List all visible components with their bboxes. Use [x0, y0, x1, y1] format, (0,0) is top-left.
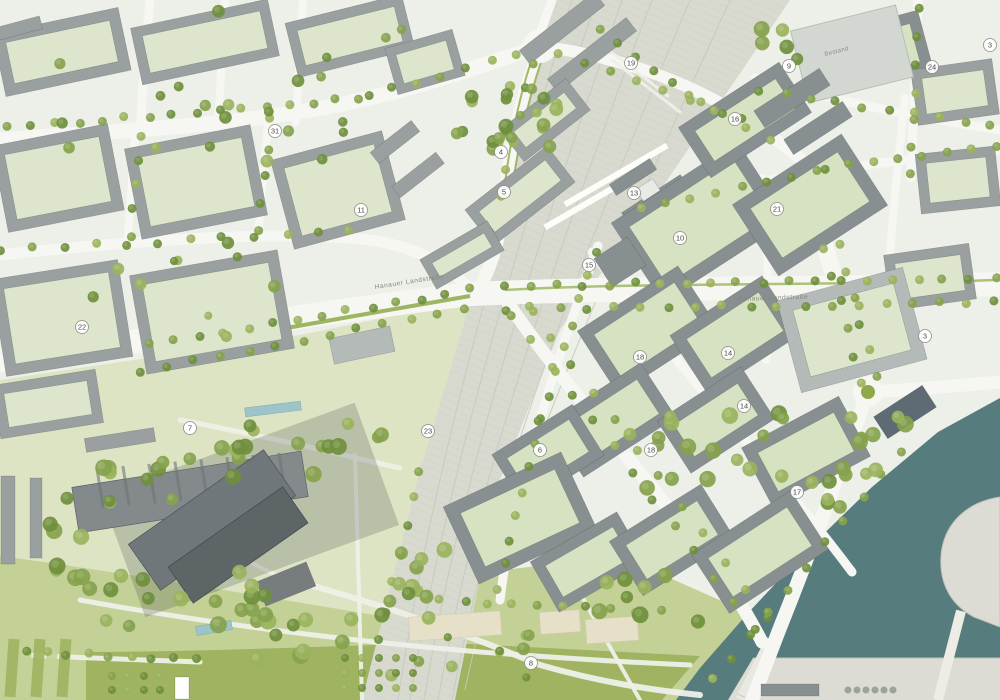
- plan-marker-31: 31: [269, 125, 282, 138]
- svg-text:13: 13: [630, 189, 638, 198]
- svg-text:3: 3: [988, 41, 992, 50]
- svg-text:22: 22: [78, 323, 86, 332]
- svg-text:18: 18: [636, 353, 644, 362]
- svg-text:16: 16: [731, 115, 739, 124]
- svg-text:6: 6: [538, 446, 542, 455]
- plan-marker-19: 19: [625, 57, 638, 70]
- plan-marker-18: 18: [634, 351, 647, 364]
- svg-text:9: 9: [787, 62, 791, 71]
- plan-marker-22: 22: [76, 321, 89, 334]
- svg-text:18: 18: [647, 446, 655, 455]
- plan-marker-9: 9: [783, 60, 796, 73]
- svg-text:15: 15: [585, 261, 593, 270]
- svg-text:21: 21: [773, 205, 781, 214]
- plan-marker-14: 14: [738, 400, 751, 413]
- svg-text:3: 3: [923, 332, 927, 341]
- svg-text:8: 8: [529, 659, 533, 668]
- plan-marker-13: 13: [628, 187, 641, 200]
- plan-marker-11: 11: [355, 204, 368, 217]
- svg-text:31: 31: [271, 127, 279, 136]
- building-label-0: Bestand: [824, 46, 850, 58]
- svg-text:19: 19: [627, 59, 635, 68]
- plan-marker-21: 21: [771, 203, 784, 216]
- plan-marker-6: 6: [534, 444, 547, 457]
- plan-marker-4: 4: [495, 146, 508, 159]
- svg-text:24: 24: [928, 63, 936, 72]
- plan-marker-3: 3: [919, 330, 932, 343]
- svg-text:23: 23: [424, 427, 432, 436]
- plan-marker-24: 24: [926, 61, 939, 74]
- plan-marker-17: 17: [791, 486, 804, 499]
- plan-marker-5: 5: [498, 186, 511, 199]
- plan-marker-3: 3: [984, 39, 997, 52]
- plan-marker-15: 15: [583, 259, 596, 272]
- plan-marker-18: 18: [645, 444, 658, 457]
- plan-marker-7: 7: [184, 422, 197, 435]
- svg-text:14: 14: [724, 349, 732, 358]
- svg-text:17: 17: [793, 488, 801, 497]
- svg-text:7: 7: [188, 424, 192, 433]
- map-annotation-layer: Hanauer LandstraßeHanauer LandstraßeBest…: [0, 0, 1000, 700]
- street-label-0: Hanauer Landstraße: [374, 273, 445, 291]
- masterplan-map: Hanauer LandstraßeHanauer LandstraßeBest…: [0, 0, 1000, 700]
- svg-text:10: 10: [676, 234, 684, 243]
- plan-marker-14: 14: [722, 347, 735, 360]
- plan-marker-16: 16: [729, 113, 742, 126]
- street-label-1: Hanauer Landstraße: [738, 294, 809, 303]
- plan-marker-23: 23: [422, 425, 435, 438]
- svg-text:14: 14: [740, 402, 748, 411]
- svg-text:4: 4: [499, 148, 503, 157]
- svg-text:5: 5: [502, 188, 506, 197]
- plan-marker-10: 10: [674, 232, 687, 245]
- svg-text:11: 11: [357, 206, 365, 215]
- plan-marker-8: 8: [525, 657, 538, 670]
